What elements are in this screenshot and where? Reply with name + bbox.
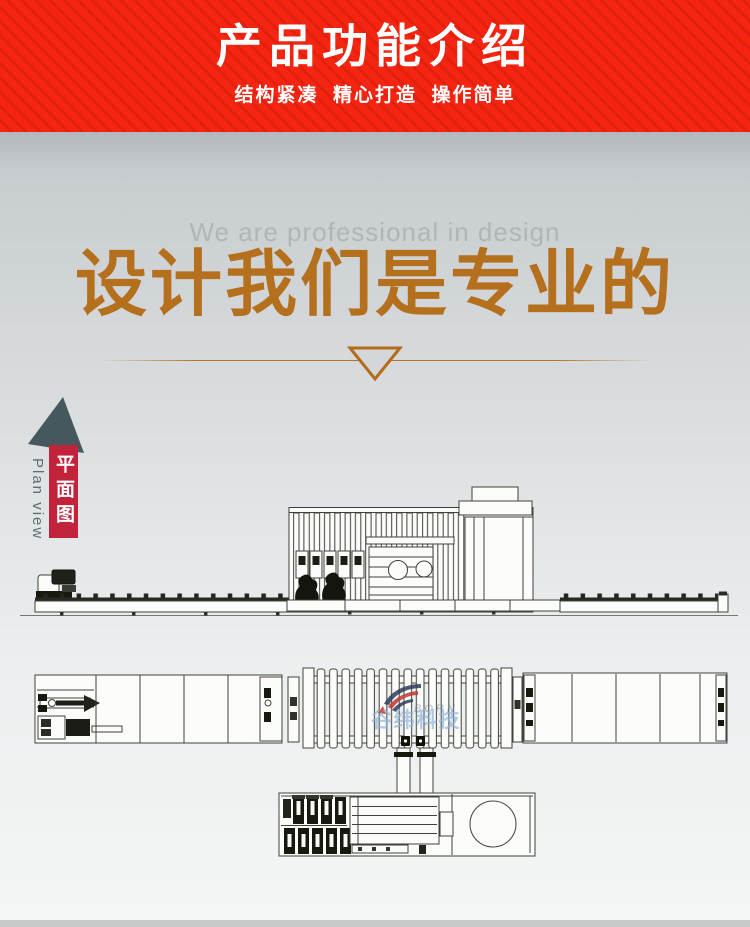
section-divider [0, 340, 750, 385]
next-section-edge [0, 920, 750, 927]
elevation-view-drawing [20, 487, 738, 616]
product-intro-page: 产品功能介绍 结构紧凑 精心打造 操作简单 We are professiona… [0, 0, 750, 927]
section-subtitle-en: We are professional in design [0, 219, 750, 245]
banner-header: 产品功能介绍 结构紧凑 精心打造 操作简单 [0, 0, 750, 132]
technical-drawing: BORN 谷纬科技 [0, 478, 750, 860]
detail-view-drawing [279, 793, 535, 856]
down-triangle-icon [347, 345, 403, 383]
banner-subtitle: 结构紧凑 精心打造 操作简单 [0, 72, 750, 106]
banner-title: 产品功能介绍 [0, 0, 750, 72]
watermark-text-cn: 谷纬科技 [371, 708, 461, 732]
section-title-cn: 设计我们是专业的 [0, 245, 750, 325]
